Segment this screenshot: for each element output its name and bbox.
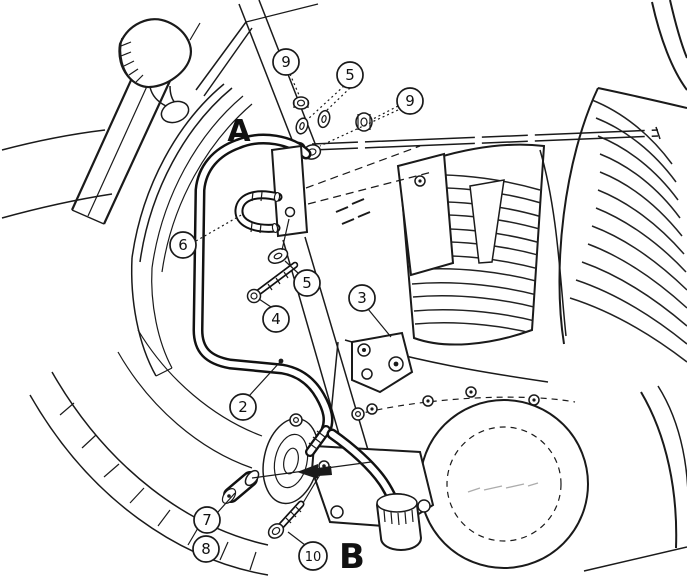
callout-number: 3	[357, 289, 367, 307]
rear-frame-tube	[670, 0, 687, 58]
frame-line	[204, 28, 252, 96]
rear-cylinder-top-edge	[598, 88, 687, 108]
callout-number: 7	[202, 511, 212, 529]
callout-8: 8	[193, 536, 219, 562]
clamp-plate-hole	[286, 208, 295, 217]
hex-bolt-lower	[266, 504, 301, 541]
fender-tip-line	[152, 268, 172, 368]
callout-9-top-left: 9	[273, 49, 299, 75]
v-gap-edge	[540, 150, 566, 336]
diagram-page: 9 5 9 6 5 4 3 2	[0, 0, 687, 584]
callout-number: 8	[201, 540, 211, 558]
fender-tip-line	[132, 258, 156, 376]
case-arc	[641, 392, 676, 548]
bracket-hole	[362, 369, 372, 379]
callout-number: 4	[271, 310, 281, 328]
callout-6: 6	[170, 232, 196, 258]
case-arc	[658, 386, 687, 520]
callout-number: 9	[281, 53, 291, 71]
projection-dash-marks	[336, 199, 370, 224]
turn-signal	[119, 19, 200, 126]
top-clamp-plate	[272, 146, 307, 236]
callout-10: 10	[299, 542, 327, 570]
frame-line	[246, 4, 318, 22]
tire-edge-arc	[2, 194, 112, 218]
callout-7: 7	[194, 507, 220, 533]
exploded-parts-diagram: 9 5 9 6 5 4 3 2	[0, 0, 687, 584]
rod-top-line	[312, 130, 658, 144]
hex-nut-upper	[294, 97, 309, 109]
washer	[294, 117, 309, 136]
callout-5-mid: 5	[294, 270, 320, 296]
section-label-a: A	[227, 114, 251, 149]
callout-4: 4	[263, 306, 289, 332]
u-bolt	[239, 192, 280, 233]
signal-mount-boss	[158, 98, 191, 126]
callout-number: 6	[178, 236, 188, 254]
callout-number: 2	[238, 398, 248, 416]
bracket-hole-center	[362, 348, 366, 352]
rod-end-cap	[656, 127, 660, 139]
case-bottom-edge	[584, 547, 687, 571]
callout-number: 5	[345, 66, 355, 84]
spacer-sleeve	[220, 468, 261, 506]
plate-hole	[418, 500, 430, 512]
callout-number: 5	[302, 274, 312, 292]
rubber-foot	[377, 494, 421, 550]
callout-2: 2	[230, 394, 256, 420]
hex-bolt-mid	[248, 265, 296, 303]
callout-number: 9	[405, 92, 415, 110]
washer	[317, 109, 332, 128]
pushrod-cover	[470, 180, 504, 263]
bracket-hole-center	[394, 362, 399, 367]
hex-nut-right	[356, 113, 372, 131]
callout-9-top-right: 9	[397, 88, 423, 114]
round-engine-cover	[420, 400, 588, 568]
callout-5-top: 5	[337, 62, 363, 88]
panel-bolt-center	[418, 179, 421, 182]
section-label-b: B	[339, 537, 365, 577]
frame-line	[196, 22, 246, 90]
plate-hole	[331, 506, 343, 518]
tire-edge-arc	[2, 130, 105, 150]
signal-wire-line	[190, 23, 200, 40]
fork-lower-joint	[72, 210, 104, 224]
callout-number: 10	[305, 550, 322, 565]
callout-3: 3	[349, 285, 375, 311]
